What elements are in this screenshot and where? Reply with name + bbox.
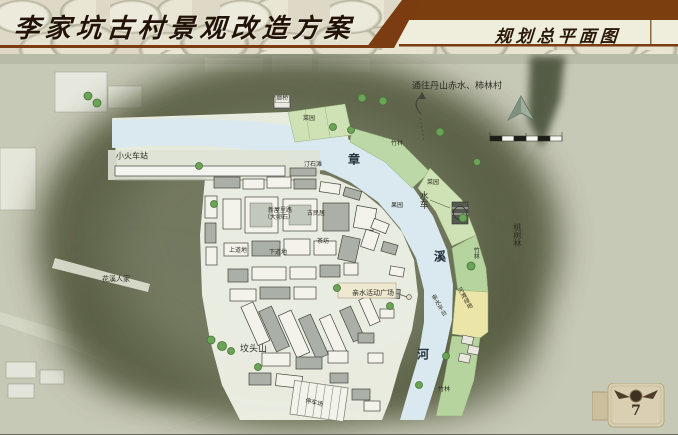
train-station [108,150,320,180]
covered-bridge-icon [274,97,290,108]
header: 李家坑古村景观改造方案 规划总平面图 [0,0,678,54]
parking-lot [290,380,348,421]
slide-page: 通往丹山赤水、柿林村小火车站廊桥菜园竹林汀石滩章水车菜园果园溪竹林桃树林河滩绿地… [0,0,678,435]
waterfront-plaza-shape [338,283,396,298]
page-title: 李家坑古村景观改造方案 [13,8,357,45]
plaza-feature [407,295,412,300]
page-number: 7 [608,403,664,419]
plan-subtitle: 规划总平面图 [471,22,645,47]
site-plan-graphic [0,0,678,434]
page-number-plaque: 7 [592,383,666,428]
